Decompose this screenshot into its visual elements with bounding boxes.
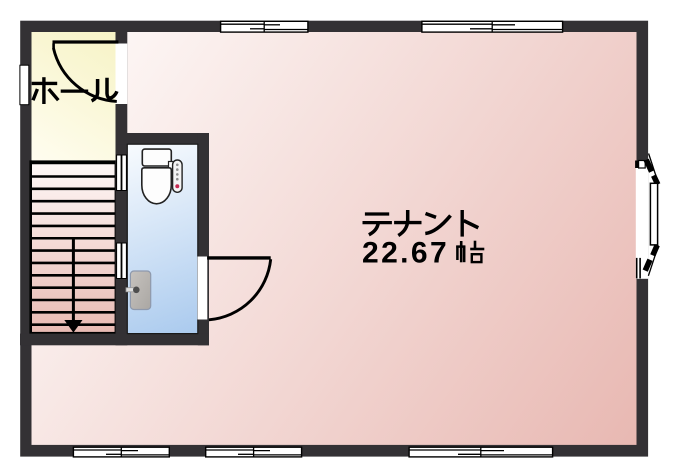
svg-text:22.67: 22.67 xyxy=(362,237,449,270)
